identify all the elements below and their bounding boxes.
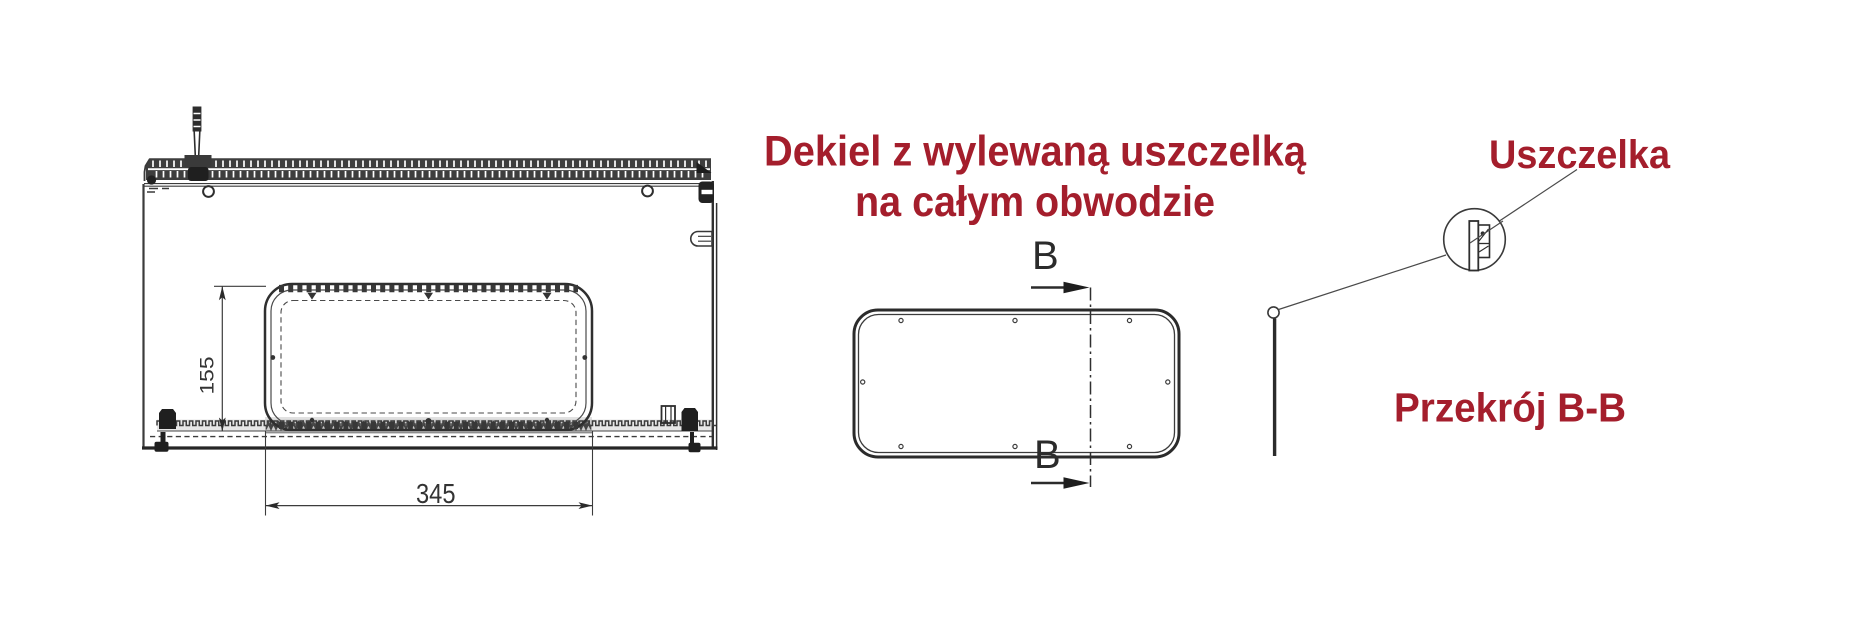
svg-text:155: 155 <box>198 357 219 395</box>
svg-text:na całym obwodzie: na całym obwodzie <box>855 179 1215 226</box>
svg-text:B: B <box>1034 433 1061 477</box>
svg-text:345: 345 <box>416 478 456 509</box>
svg-text:Dekiel z wylewaną uszczelką: Dekiel z wylewaną uszczelką <box>764 129 1306 176</box>
svg-text:Uszczelka: Uszczelka <box>1489 133 1671 177</box>
svg-text:Przekrój B-B: Przekrój B-B <box>1394 385 1626 431</box>
svg-text:B: B <box>1032 234 1059 278</box>
